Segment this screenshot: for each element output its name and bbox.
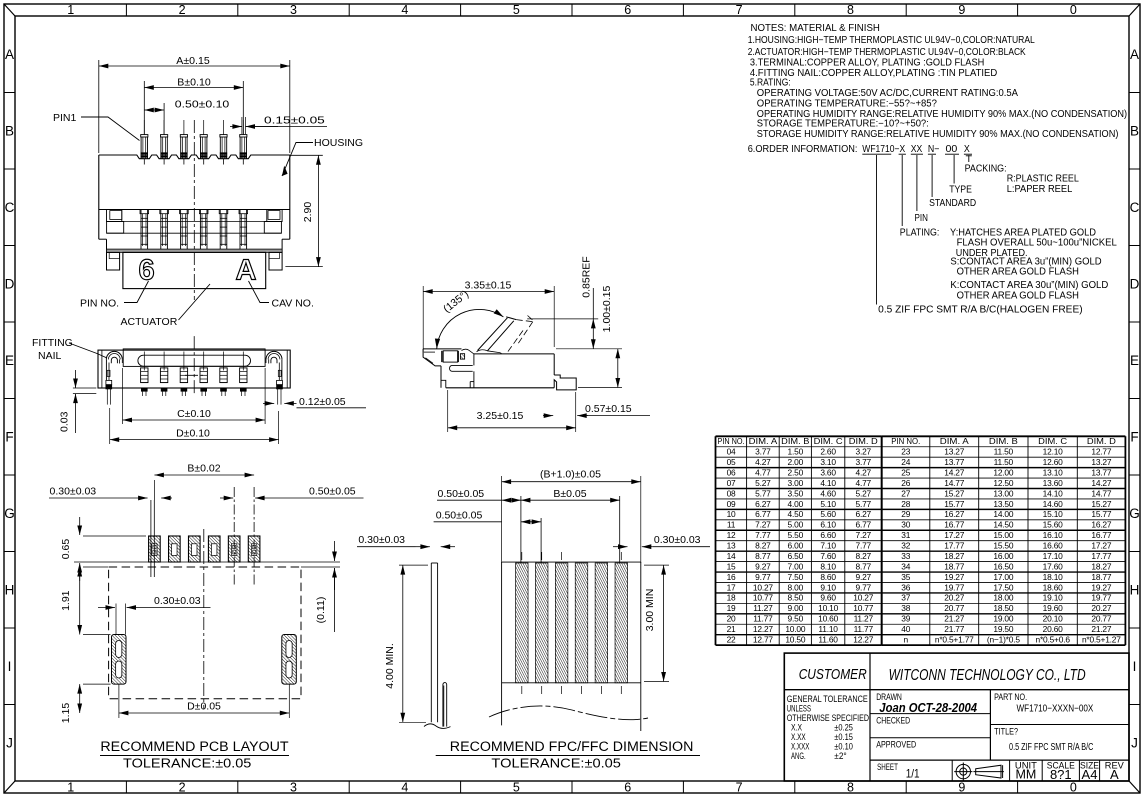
svg-text:20.27: 20.27 [944,593,965,603]
svg-text:21.77: 21.77 [944,624,965,634]
svg-text:23: 23 [901,447,910,457]
svg-text:DIM. B: DIM. B [989,437,1019,446]
svg-text:05: 05 [727,457,736,467]
svg-text:5: 5 [513,3,520,17]
svg-text:15.00: 15.00 [993,530,1014,540]
svg-text:14.27: 14.27 [1091,478,1112,488]
svg-text:1/1: 1/1 [906,767,920,781]
svg-text:16.50: 16.50 [993,561,1014,571]
svg-text:TOLERANCE:±0.05: TOLERANCE:±0.05 [491,757,621,771]
svg-text:19.00: 19.00 [993,614,1014,624]
svg-text:13.50: 13.50 [993,499,1014,509]
svg-text:20.27: 20.27 [1091,603,1112,613]
svg-text:A: A [5,47,14,62]
svg-text:10.77: 10.77 [853,603,874,613]
svg-text:20.60: 20.60 [1043,624,1064,634]
svg-text:F: F [1130,429,1138,444]
svg-text:08: 08 [727,488,736,498]
svg-text:8: 8 [847,781,854,795]
svg-text:(n−1)*0.5: (n−1)*0.5 [987,635,1020,645]
svg-text:17.50: 17.50 [993,582,1014,592]
svg-text:15: 15 [727,561,736,571]
svg-text:15.27: 15.27 [944,488,965,498]
svg-text:(0.11): (0.11) [315,597,327,624]
svg-text:WF1710−XXXN−00X: WF1710−XXXN−00X [1016,704,1093,715]
svg-text:8?1: 8?1 [1050,767,1072,782]
svg-text:26: 26 [901,478,910,488]
svg-text:11.10: 11.10 [818,624,838,634]
svg-text:37: 37 [901,593,910,603]
svg-text:6.60: 6.60 [820,530,836,540]
svg-text:5.77: 5.77 [855,499,871,509]
svg-text:14.10: 14.10 [1043,488,1064,498]
svg-text:L:PAPER REEL: L:PAPER REEL [1007,184,1073,195]
svg-text:DIM. C: DIM. C [1038,437,1067,446]
svg-text:8.27: 8.27 [755,541,771,551]
svg-text:18.77: 18.77 [944,561,965,571]
svg-text:CAV NO.: CAV NO. [272,298,314,310]
svg-text:0.15±0.05: 0.15±0.05 [264,115,325,127]
svg-text:06: 06 [727,467,736,477]
svg-text:7.10: 7.10 [820,541,836,551]
svg-text:FLASH OVERALL 50u~100u”NICKE: FLASH OVERALL 50u~100u”NICKEL [957,238,1118,249]
svg-text:22: 22 [727,635,736,645]
svg-text:19.27: 19.27 [1091,582,1112,592]
svg-text:X.X: X.X [791,723,802,733]
svg-text:A: A [1130,47,1139,62]
svg-text:18.77: 18.77 [1091,572,1112,582]
svg-text:9.50: 9.50 [788,614,804,624]
svg-text:10.10: 10.10 [818,603,839,613]
svg-text:6: 6 [624,781,631,795]
svg-text:9: 9 [958,781,965,795]
svg-text:4.60: 4.60 [820,488,836,498]
svg-text:F: F [5,429,13,444]
svg-text:2.50: 2.50 [788,467,804,477]
svg-text:11: 11 [727,520,736,530]
svg-text:0.30±0.03: 0.30±0.03 [50,486,97,498]
svg-text:17.00: 17.00 [993,572,1014,582]
svg-text:27: 27 [901,488,910,498]
svg-text:6.10: 6.10 [820,520,836,530]
svg-text:8.10: 8.10 [820,561,836,571]
svg-text:12.27: 12.27 [753,624,774,634]
svg-text:8.27: 8.27 [855,551,871,561]
svg-text:20.77: 20.77 [944,603,965,613]
svg-text:19: 19 [727,603,736,613]
svg-text:0.12±0.05: 0.12±0.05 [299,396,346,408]
svg-text:3: 3 [290,781,297,795]
svg-text:n*0.5+1.27: n*0.5+1.27 [1082,635,1121,645]
svg-text:H: H [1130,582,1140,597]
svg-text:TYPE: TYPE [949,185,972,196]
svg-text:2: 2 [179,781,186,795]
svg-text:6.50: 6.50 [788,551,804,561]
svg-text:18.60: 18.60 [1043,582,1064,592]
svg-text:PACKING:: PACKING: [965,163,1007,174]
svg-text:Joan OCT-28-2004: Joan OCT-28-2004 [879,701,977,715]
svg-text:ACTUATOR: ACTUATOR [121,316,178,328]
svg-text:STORAGE HUMIDITY RANGE:RELAT: STORAGE HUMIDITY RANGE:RELATIVE HUMIDITY… [757,129,1119,140]
svg-text:WF1710−X: WF1710−X [862,144,905,155]
svg-text:21: 21 [727,624,736,634]
svg-text:J: J [1131,735,1138,750]
svg-text:OTHER AREA GOLD FLASH: OTHER AREA GOLD FLASH [957,267,1079,278]
svg-text:I: I [1133,659,1137,674]
svg-text:7.77: 7.77 [755,530,771,540]
svg-text:C±0.10: C±0.10 [177,408,211,420]
svg-text:13.60: 13.60 [1043,478,1064,488]
svg-text:DIM. B: DIM. B [781,437,810,446]
svg-text:PART NO.: PART NO. [994,692,1027,703]
svg-text:HOUSING: HOUSING [314,137,363,149]
svg-text:0.5 ZIF FPC SMT R/A B/C: 0.5 ZIF FPC SMT R/A B/C [1009,742,1093,753]
svg-text:6.00: 6.00 [788,541,804,551]
svg-text:9.10: 9.10 [820,582,836,592]
svg-text:10.77: 10.77 [753,593,774,603]
svg-text:18.10: 18.10 [1043,572,1064,582]
svg-text:11.27: 11.27 [753,603,773,613]
svg-text:H: H [5,582,15,597]
svg-text:17.60: 17.60 [1043,561,1064,571]
svg-text:14: 14 [727,551,736,561]
svg-text:8.60: 8.60 [820,572,836,582]
svg-text:ANG.: ANG. [791,751,806,761]
svg-text:07: 07 [727,478,736,488]
svg-text:10: 10 [727,509,736,519]
svg-text:12.00: 12.00 [993,467,1014,477]
svg-text:13.27: 13.27 [944,447,965,457]
svg-text:3.50: 3.50 [788,488,804,498]
svg-text:21.27: 21.27 [944,614,965,624]
svg-text:13: 13 [727,541,736,551]
svg-text:0.50±0.10: 0.50±0.10 [175,99,230,111]
svg-text:13.00: 13.00 [993,488,1014,498]
svg-text:14.60: 14.60 [1043,499,1064,509]
svg-text:B: B [5,123,14,138]
svg-text:5.77: 5.77 [755,488,771,498]
svg-text:CHECKED: CHECKED [876,716,910,727]
svg-text:PIN NO.: PIN NO. [891,437,920,446]
svg-text:CUSTOMER: CUSTOMER [799,667,867,683]
svg-text:B: B [1130,123,1139,138]
svg-text:19.27: 19.27 [944,572,965,582]
svg-text:A4: A4 [1082,767,1098,782]
svg-text:11.27: 11.27 [854,614,874,624]
svg-text:TOLERANCE:±0.05: TOLERANCE:±0.05 [123,757,251,771]
svg-text:30: 30 [901,520,910,530]
svg-text:15.60: 15.60 [1043,520,1064,530]
svg-text:9.60: 9.60 [820,593,836,603]
svg-text:15.77: 15.77 [944,499,965,509]
svg-text:4.00 MIN.: 4.00 MIN. [384,643,396,689]
svg-text:B±0.10: B±0.10 [177,77,211,89]
svg-text:5.60: 5.60 [820,509,836,519]
svg-text:4.77: 4.77 [755,467,771,477]
svg-text:2.00: 2.00 [788,457,804,467]
svg-text:1: 1 [67,3,74,17]
svg-text:6.ORDER INFORMATION:: 6.ORDER INFORMATION: [748,144,858,155]
svg-text:4.00: 4.00 [788,499,804,509]
svg-text:10.50: 10.50 [785,635,806,645]
svg-text:N−: N− [928,144,940,155]
svg-text:5.50: 5.50 [788,530,804,540]
svg-text:3.27: 3.27 [855,447,871,457]
svg-text:12.77: 12.77 [753,635,774,645]
svg-text:DIM. C: DIM. C [814,437,843,446]
svg-text:D: D [1130,276,1140,291]
svg-text:13.27: 13.27 [1091,457,1112,467]
svg-text:4.50: 4.50 [788,509,804,519]
svg-text:0.57±0.15: 0.57±0.15 [585,403,632,415]
svg-text:20.10: 20.10 [1043,614,1064,624]
svg-text:5.RATING:: 5.RATING: [750,78,791,89]
svg-text:17.10: 17.10 [1043,551,1064,561]
svg-text:2.60: 2.60 [820,447,836,457]
svg-text:09: 09 [727,499,736,509]
svg-text:D: D [5,276,15,291]
svg-text:D±0.10: D±0.10 [176,428,210,440]
svg-text:38: 38 [901,603,910,613]
svg-text:OTHERWISE SPECIFIED: OTHERWISE SPECIFIED [787,713,870,723]
svg-text:B±0.02: B±0.02 [187,463,220,475]
svg-text:18.27: 18.27 [944,551,965,561]
svg-text:PIN NO.: PIN NO. [80,298,119,310]
svg-text:TITLE?: TITLE? [994,727,1018,738]
svg-text:15.77: 15.77 [1091,509,1112,519]
svg-text:6.77: 6.77 [855,520,871,530]
svg-text:DIM. D: DIM. D [849,437,878,446]
svg-text:17.77: 17.77 [944,541,965,551]
svg-text:11.50: 11.50 [994,457,1014,467]
svg-text:DIM. A: DIM. A [940,437,970,446]
svg-text:18.27: 18.27 [1091,561,1112,571]
svg-text:36: 36 [901,582,910,592]
svg-text:29: 29 [901,509,910,519]
svg-text:9.77: 9.77 [755,572,771,582]
svg-text:13.10: 13.10 [1043,467,1064,477]
svg-text:11.50: 11.50 [994,447,1014,457]
svg-text:35: 35 [901,572,910,582]
svg-text:6.27: 6.27 [855,509,871,519]
svg-text:D±0.05: D±0.05 [187,701,221,713]
svg-text:STORAGE TEMPERATURE:−10?~+50?: STORAGE TEMPERATURE:−10?~+50?: [757,119,929,130]
svg-text:8: 8 [847,3,854,17]
svg-text:19.10: 19.10 [1043,593,1064,603]
svg-text:16.77: 16.77 [1091,530,1112,540]
svg-text:1: 1 [67,781,74,795]
svg-text:SHEET: SHEET [877,762,898,773]
svg-text:0.03: 0.03 [59,411,71,432]
svg-text:11.77: 11.77 [753,614,773,624]
svg-text:7.27: 7.27 [855,530,871,540]
svg-text:0.85REF: 0.85REF [581,256,593,297]
svg-text:±0.15: ±0.15 [834,732,853,742]
svg-text:10.27: 10.27 [853,593,874,603]
svg-text:STANDARD: STANDARD [929,198,976,209]
svg-text:25: 25 [901,467,910,477]
svg-text:PIN1: PIN1 [53,112,77,124]
svg-text:17.27: 17.27 [944,530,965,540]
svg-text:12.10: 12.10 [1043,447,1064,457]
svg-text:1.15: 1.15 [60,703,72,724]
svg-text:OTHER AREA GOLD FLASH: OTHER AREA GOLD FLASH [957,291,1079,302]
svg-text:16.10: 16.10 [1043,530,1064,540]
svg-text:4: 4 [401,3,408,17]
svg-text:12.60: 12.60 [1043,457,1064,467]
svg-text:X: X [964,144,970,155]
svg-text:34: 34 [901,561,910,571]
svg-text:10.60: 10.60 [818,614,839,624]
svg-text:15.50: 15.50 [993,541,1014,551]
svg-text:0.65: 0.65 [60,539,72,560]
svg-text:12: 12 [727,530,736,540]
svg-text:9.00: 9.00 [788,603,804,613]
svg-text:E: E [5,353,14,368]
svg-text:0.30±0.03: 0.30±0.03 [654,534,701,546]
svg-text:OPERATING VOLTAGE:50V AC/DC,: OPERATING VOLTAGE:50V AC/DC,CURRENT RATI… [757,88,1019,99]
svg-text:n*0.5+0.6: n*0.5+0.6 [1036,635,1071,645]
svg-text:0.5 ZIF FPC SMT R/A B/C(H: 0.5 ZIF FPC SMT R/A B/C(HALOGEN FREE) [878,305,1082,316]
svg-text:A: A [1110,767,1119,782]
svg-text:28: 28 [901,499,910,509]
svg-text:7.50: 7.50 [788,572,804,582]
svg-text:A±0.15: A±0.15 [176,55,210,67]
svg-text:14.77: 14.77 [1091,488,1112,498]
svg-text:2: 2 [179,3,186,17]
svg-text:14.27: 14.27 [944,467,965,477]
svg-text:16.27: 16.27 [1091,520,1112,530]
svg-text:16.77: 16.77 [944,520,965,530]
svg-text:04: 04 [727,447,736,457]
svg-text:PIN: PIN [915,213,928,224]
svg-text:12.77: 12.77 [1091,447,1112,457]
svg-text:RECOMMEND FPC/FFC DIMENSION: RECOMMEND FPC/FFC DIMENSION [450,739,694,754]
svg-text:RECOMMEND PCB LAYOUT: RECOMMEND PCB LAYOUT [100,739,288,754]
svg-text:GENERAL TOLERANCE: GENERAL TOLERANCE [787,694,868,704]
svg-text:9.27: 9.27 [755,561,771,571]
svg-text:3.00 MIN: 3.00 MIN [644,589,656,632]
svg-text:3.60: 3.60 [820,467,836,477]
svg-text:32: 32 [901,541,910,551]
svg-text:9: 9 [958,3,965,17]
svg-text:0.50±0.05: 0.50±0.05 [309,486,356,498]
svg-text:8.77: 8.77 [755,551,771,561]
svg-text:4.10: 4.10 [820,478,836,488]
svg-text:17.27: 17.27 [1091,541,1112,551]
svg-text:J: J [6,735,13,750]
svg-text:20.77: 20.77 [1091,614,1112,624]
svg-text:APPROVED: APPROVED [876,740,916,751]
svg-text:9.77: 9.77 [855,582,871,592]
svg-text:7.00: 7.00 [788,561,804,571]
svg-text:19.50: 19.50 [993,624,1014,634]
svg-text:3.10: 3.10 [820,457,836,467]
svg-text:PIN NO.: PIN NO. [718,437,745,446]
svg-text:8.77: 8.77 [855,561,871,571]
svg-text:20: 20 [727,614,736,624]
svg-text:3.77: 3.77 [855,457,871,467]
svg-text:C: C [5,200,15,215]
svg-text:5.27: 5.27 [855,488,871,498]
svg-text:16.60: 16.60 [1043,541,1064,551]
svg-text:15.10: 15.10 [1043,509,1064,519]
svg-text:X.XXX: X.XXX [791,742,809,752]
svg-text:18.50: 18.50 [993,603,1014,613]
svg-text:4.27: 4.27 [855,467,871,477]
svg-text:G: G [1129,506,1140,521]
svg-text:7: 7 [736,3,743,17]
svg-text:B±0.05: B±0.05 [553,488,586,500]
svg-text:5: 5 [513,781,520,795]
svg-text:C: C [1130,200,1140,215]
svg-text:14.00: 14.00 [993,509,1014,519]
svg-text:11.77: 11.77 [854,624,874,634]
svg-text:14.77: 14.77 [944,478,965,488]
svg-text:FITTING: FITTING [32,337,73,349]
svg-text:12.27: 12.27 [853,635,874,645]
svg-text:6.27: 6.27 [755,499,771,509]
svg-text:MM: MM [1015,768,1036,782]
svg-text:12.50: 12.50 [993,478,1014,488]
svg-text:17.77: 17.77 [1091,551,1112,561]
svg-text:XX: XX [911,144,923,155]
svg-text:±0.25: ±0.25 [834,723,853,733]
svg-text:7.60: 7.60 [820,551,836,561]
svg-text:2.90: 2.90 [302,202,314,223]
svg-text:31: 31 [901,530,910,540]
svg-text:39: 39 [901,614,910,624]
svg-text:DIM. D: DIM. D [1087,437,1116,446]
svg-text:1.00±0.15: 1.00±0.15 [601,286,613,333]
svg-text:3.TERMINAL:COPPER ALLOY, PLA: 3.TERMINAL:COPPER ALLOY, PLATING :GOLD F… [750,58,984,69]
svg-text:0: 0 [1070,3,1077,17]
svg-text:0.50±0.05: 0.50±0.05 [438,488,485,500]
svg-text:19.60: 19.60 [1043,603,1064,613]
svg-text:3.35±0.15: 3.35±0.15 [465,280,512,292]
svg-text:8.00: 8.00 [788,582,804,592]
svg-text:0: 0 [1070,781,1077,795]
svg-text:n: n [904,635,909,645]
svg-text:5.00: 5.00 [788,520,804,530]
svg-text:2.ACTUATOR:HIGH−TEMP THERMOPL: 2.ACTUATOR:HIGH−TEMP THERMOPLASTIC UL94V… [748,47,1026,58]
svg-text:±0.10: ±0.10 [834,742,853,752]
svg-text:11.60: 11.60 [818,635,838,645]
svg-text:±2°: ±2° [834,751,847,761]
svg-text:4: 4 [401,781,408,795]
svg-text:G: G [4,506,15,521]
svg-text:WITCONN TECHNOLOGY CO., LTD: WITCONN TECHNOLOGY CO., LTD [889,667,1086,684]
svg-text:DIM. A: DIM. A [749,437,778,446]
svg-text:5.27: 5.27 [755,478,771,488]
svg-text:40: 40 [901,624,910,634]
svg-text:13.77: 13.77 [1091,467,1112,477]
svg-text:16.27: 16.27 [944,509,965,519]
svg-text:X.XX: X.XX [791,732,806,742]
svg-text:16.00: 16.00 [993,551,1014,561]
svg-text:33: 33 [901,551,910,561]
svg-text:19.77: 19.77 [1091,593,1112,603]
svg-text:K:CONTACT AREA 30u”(MIN) GO: K:CONTACT AREA 30u”(MIN) GOLD [950,280,1108,291]
svg-text:6: 6 [624,3,631,17]
svg-text:17: 17 [727,582,736,592]
svg-text:18: 18 [727,593,736,603]
svg-text:4.27: 4.27 [755,457,771,467]
svg-text:13.77: 13.77 [944,457,965,467]
svg-text:3.25±0.15: 3.25±0.15 [477,410,524,422]
svg-text:I: I [8,659,12,674]
svg-text:3.77: 3.77 [755,447,771,457]
